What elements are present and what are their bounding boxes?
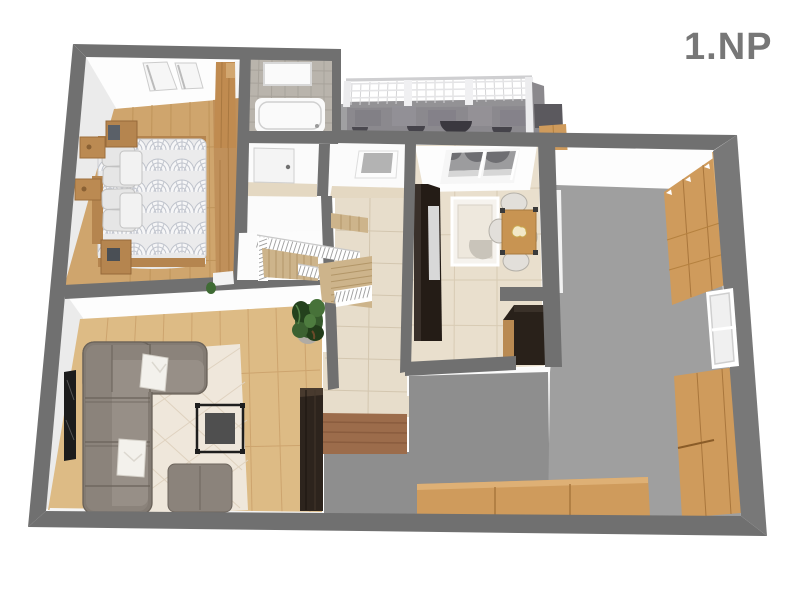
- svg-text:1.NP: 1.NP: [684, 26, 772, 68]
